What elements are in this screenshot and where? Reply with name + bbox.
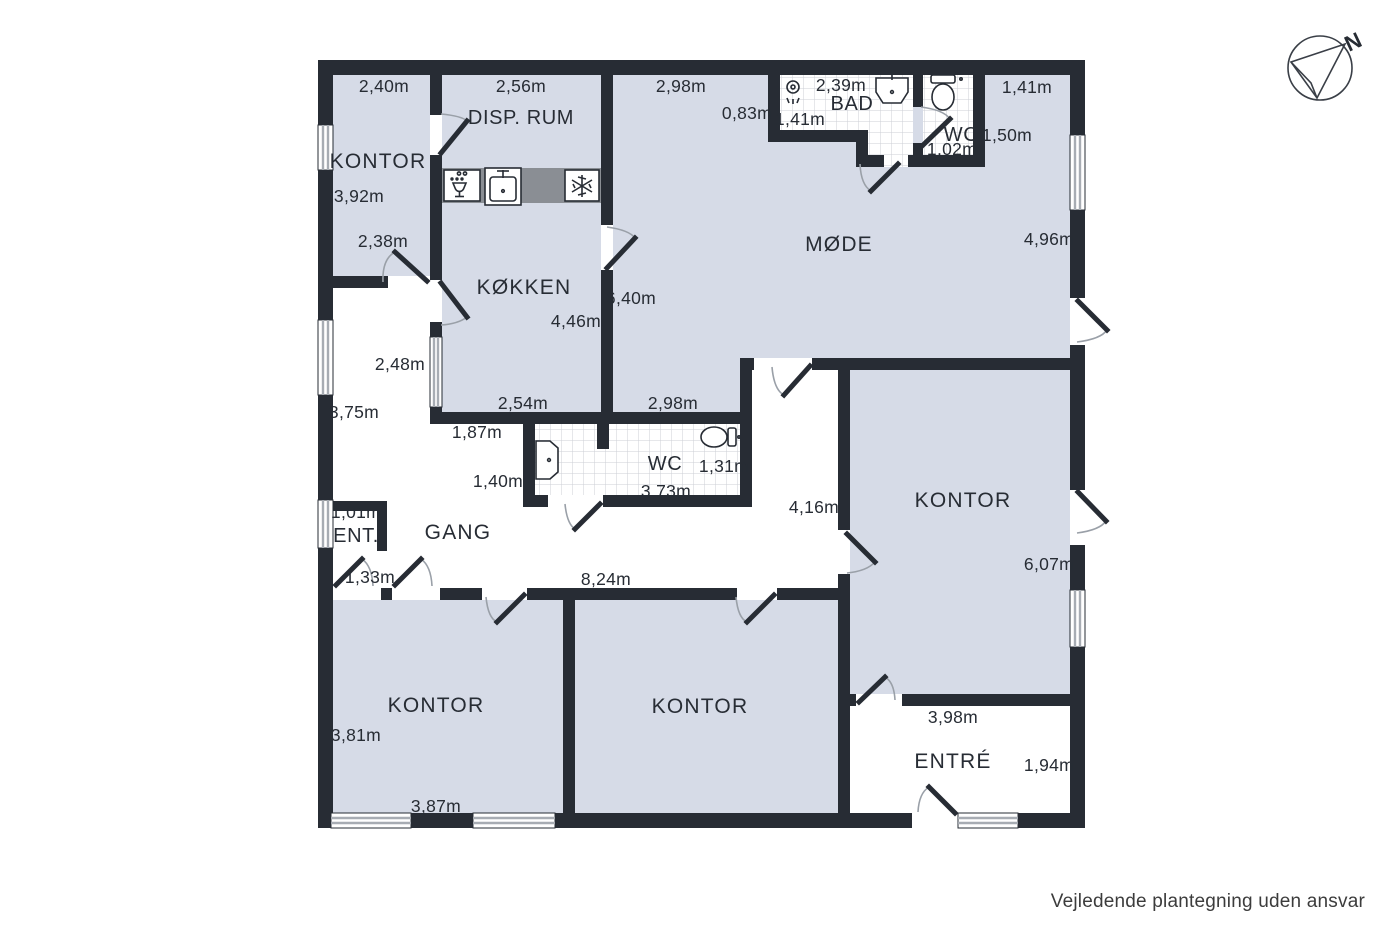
opening-moede-corridor	[754, 358, 812, 370]
label-kontor-right-height: 6,07m	[1024, 554, 1074, 574]
label-gang-width-top: 2,48m	[375, 354, 425, 374]
label-koekken-bottom: 2,54m	[498, 393, 548, 413]
label-bad-width: 2,39m	[816, 75, 866, 95]
label-moede-right-strip: 1,41m	[1002, 77, 1052, 97]
opening-wc-mid	[548, 495, 603, 507]
label-gang-length: 8,24m	[581, 569, 631, 589]
label-wc-top-width: 1,02m	[927, 139, 977, 159]
wall-kontor-disp-upper	[430, 75, 442, 115]
floor-plan-page: 2,40m 2,56m 2,98m 0,83m 2,39m 1,41m BAD …	[0, 0, 1400, 933]
label-gang-height-left: 3,75m	[329, 402, 379, 422]
label-room-koekken: KØKKEN	[477, 276, 572, 299]
label-room-entre: ENTRÉ	[914, 750, 991, 773]
compass-icon: N	[1288, 27, 1366, 100]
label-entre-width: 3,98m	[928, 707, 978, 727]
window-bottom-entre	[958, 813, 1018, 828]
label-kontor-tl-door: 2,38m	[358, 231, 408, 251]
label-moede-height-left: 6,40m	[606, 288, 656, 308]
wc-mid-toilet-icon	[701, 427, 740, 447]
wc-mid-sink-icon	[536, 441, 558, 479]
label-entre-height: 1,94m	[1024, 755, 1074, 775]
label-kontor-bl-height: 3,81m	[331, 725, 381, 745]
window-left-2	[318, 320, 333, 395]
opening-ent-left	[333, 588, 381, 600]
label-gang-width-mid: 1,40m	[473, 471, 523, 491]
wall-kontor-divider	[563, 600, 575, 813]
label-wc-top-height: 1,50m	[982, 125, 1032, 145]
label-wc-mid-width: 3,73m	[641, 481, 691, 501]
label-bad-offset: 0,83m	[722, 103, 772, 123]
wall-wc-mid-partition	[597, 424, 609, 449]
label-room-ent: ENT.	[333, 525, 379, 547]
wall-wc-mid-right	[740, 358, 752, 507]
label-room-bad: BAD	[831, 93, 874, 115]
wall-bad-wc-partition	[913, 75, 923, 107]
label-moede-width-top: 2,98m	[656, 76, 706, 96]
wall-exterior-top	[318, 60, 1085, 75]
opening-ent-right	[392, 588, 440, 600]
label-kontor-bl-width: 3,87m	[411, 796, 461, 816]
label-wc-mid-height: 1,31m	[699, 456, 749, 476]
disclaimer-text: Vejledende plantegning uden ansvar	[1051, 891, 1366, 912]
label-disp-rum-width: 2,56m	[496, 76, 546, 96]
wall-bad-bottom	[768, 130, 868, 142]
label-corridor-width: 4,16m	[789, 497, 839, 517]
label-gang-offset: 1,87m	[452, 422, 502, 442]
label-room-kontor-bl: KONTOR	[388, 694, 485, 717]
label-kontor-tl-height: 3,92m	[334, 186, 384, 206]
label-room-kontor-bm: KONTOR	[652, 695, 749, 718]
label-room-gang: GANG	[425, 521, 492, 544]
wall-kontor-tl-bottom	[318, 276, 388, 288]
label-ent-width: 1,01m	[331, 502, 381, 522]
label-ent-depth: 1,33m	[345, 567, 395, 587]
window-koekken-partition	[430, 337, 442, 407]
window-right-2	[1070, 590, 1085, 647]
window-bottom-1	[331, 813, 411, 828]
label-koekken-width: 4,46m	[551, 311, 601, 331]
window-bottom-2	[473, 813, 555, 828]
opening-entre-front-door	[912, 813, 958, 828]
floor-plan-drawing: 2,40m 2,56m 2,98m 0,83m 2,39m 1,41m BAD …	[0, 0, 1400, 933]
room-kontor-right	[850, 370, 1070, 694]
label-room-kontor-tl: KONTOR	[330, 150, 427, 173]
wall-corridor-kontor-right	[838, 358, 850, 530]
label-moede-bottom: 2,98m	[648, 393, 698, 413]
label-kontor-tl-width: 2,40m	[359, 76, 409, 96]
label-room-wc-mid: WC	[648, 453, 683, 475]
wall-kontor-koekken	[430, 155, 442, 280]
window-right-1	[1070, 135, 1085, 210]
wall-koekken-moede-upper	[601, 75, 613, 225]
wall-koekken-gang-stub	[430, 322, 442, 337]
label-room-moede: MØDE	[805, 233, 873, 256]
wall-wc-mid-left	[523, 412, 535, 507]
wall-kontor-entre-left	[838, 600, 850, 813]
wall-exterior-left	[318, 60, 333, 828]
label-moede-height-right: 4,96m	[1024, 229, 1074, 249]
label-bad-inner: 1,41m	[775, 109, 825, 129]
label-room-kontor-right: KONTOR	[915, 489, 1012, 512]
compass-north-label: N	[1341, 27, 1366, 56]
label-room-disp-rum: DISP. RUM	[468, 107, 574, 129]
